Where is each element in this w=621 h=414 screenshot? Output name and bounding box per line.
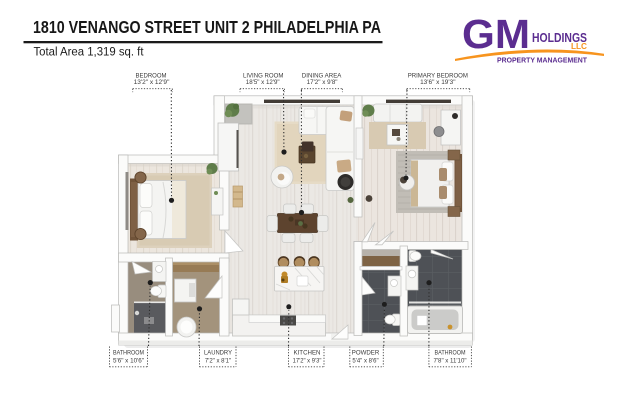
svg-text:7'2" x 8'1": 7'2" x 8'1" xyxy=(205,357,231,364)
svg-text:BATHROOM: BATHROOM xyxy=(435,350,466,357)
svg-text:17'2" x 9'3": 17'2" x 9'3" xyxy=(293,357,322,364)
svg-text:18'5" x 12'9": 18'5" x 12'9" xyxy=(246,79,280,86)
svg-text:KITCHEN: KITCHEN xyxy=(294,350,321,357)
svg-text:7'8" x 11'10": 7'8" x 11'10" xyxy=(434,357,467,364)
svg-text:GM: GM xyxy=(462,11,530,57)
svg-text:BATHROOM: BATHROOM xyxy=(113,350,144,357)
svg-text:LAUNDRY: LAUNDRY xyxy=(204,350,232,357)
svg-text:POWDER: POWDER xyxy=(352,350,380,357)
svg-text:13'2" x 12'9": 13'2" x 12'9" xyxy=(134,79,170,86)
svg-text:17'2" x 9'8": 17'2" x 9'8" xyxy=(307,79,338,86)
svg-text:5'6" x 10'6": 5'6" x 10'6" xyxy=(113,357,144,364)
svg-text:13'6" x 19'3": 13'6" x 19'3" xyxy=(420,79,455,86)
svg-text:PROPERTY MANAGEMENT: PROPERTY MANAGEMENT xyxy=(497,56,588,65)
svg-text:LLC: LLC xyxy=(571,41,587,51)
svg-text:5'4" x 8'6": 5'4" x 8'6" xyxy=(352,357,378,364)
svg-text:1810 VENANGO STREET UNIT 2 PHI: 1810 VENANGO STREET UNIT 2 PHILADELPHIA … xyxy=(33,17,381,37)
svg-text:Total Area 1,319 sq. ft: Total Area 1,319 sq. ft xyxy=(34,45,145,59)
